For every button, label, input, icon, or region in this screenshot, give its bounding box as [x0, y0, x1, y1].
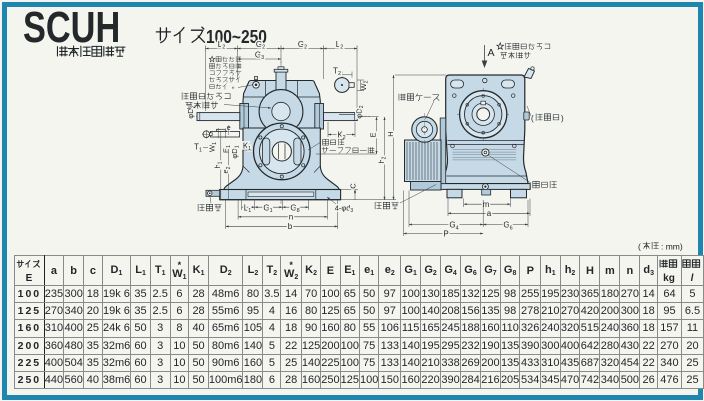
svg-text:h1: h1 — [213, 161, 224, 168]
svg-text:G6: G6 — [503, 221, 512, 232]
svg-text:L2: L2 — [336, 40, 343, 51]
svg-text:h2: h2 — [377, 156, 388, 163]
svg-text:m: m — [483, 200, 490, 209]
svg-text:T1: T1 — [194, 143, 202, 154]
svg-text:G4: G4 — [449, 221, 458, 232]
svg-text:T2: T2 — [333, 66, 341, 77]
svg-text:C: C — [349, 183, 358, 189]
svg-text:n: n — [289, 213, 293, 222]
svg-text:e2: e2 — [221, 166, 232, 173]
svg-text:(: ( — [531, 114, 534, 123]
svg-text:G3: G3 — [255, 50, 264, 61]
svg-text:G2: G2 — [256, 40, 265, 51]
svg-text:W1: W1 — [208, 142, 219, 152]
svg-text:: mm): : mm) — [661, 242, 683, 252]
svg-text:l: l — [691, 273, 694, 284]
svg-text:E: E — [26, 273, 33, 283]
svg-text:L1: L1 — [244, 203, 251, 214]
svg-text:G2: G2 — [298, 40, 307, 51]
svg-text:(: ( — [638, 242, 641, 252]
svg-text:a: a — [487, 209, 492, 218]
svg-text:H: H — [386, 131, 395, 136]
svg-text:b: b — [288, 222, 293, 231]
svg-text:A: A — [487, 47, 494, 59]
svg-text:): ) — [561, 114, 564, 123]
svg-text:kg: kg — [664, 273, 676, 284]
svg-text:P: P — [443, 229, 448, 238]
svg-text:L2: L2 — [218, 40, 225, 51]
svg-text:G1: G1 — [263, 203, 272, 214]
svg-text:E: E — [369, 132, 378, 137]
